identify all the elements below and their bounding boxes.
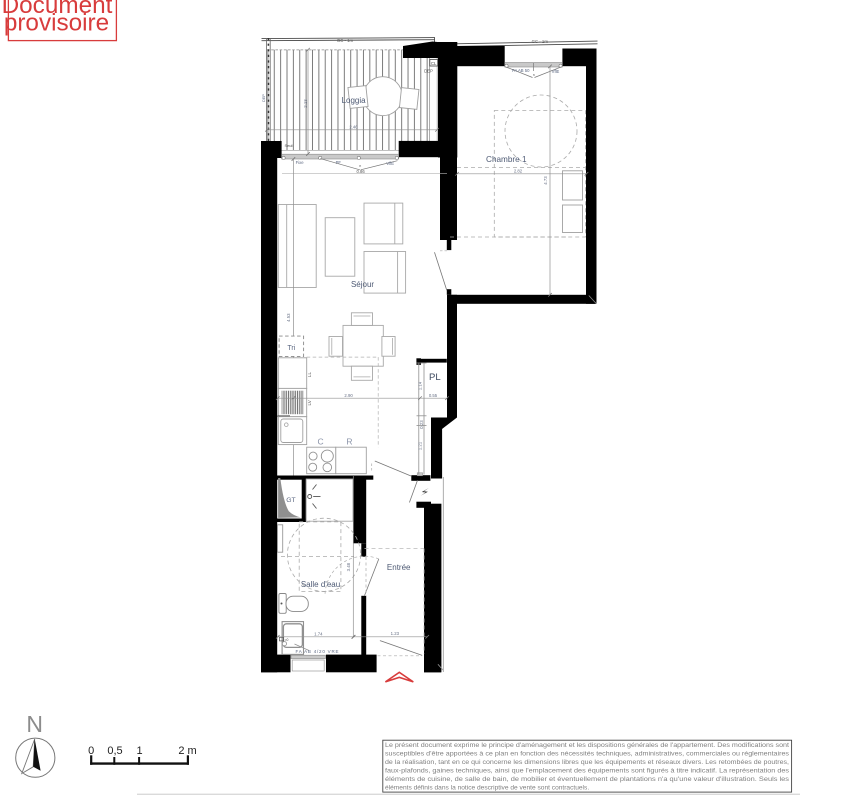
svg-text:PF: PF [336,160,342,165]
svg-text:2.46: 2.46 [349,125,358,130]
svg-text:VflE: VflE [552,69,560,74]
svg-text:DEP: DEP [424,68,433,73]
svg-text:3.48: 3.48 [346,562,351,571]
svg-text:n: n [359,164,361,168]
svg-text:0: 0 [88,745,94,757]
svg-text:éléments de cuisine, de salle: éléments de cuisine, de salle de bain, d… [385,776,790,783]
svg-text:éléments définis dans la notic: éléments définis dans la notice descript… [385,785,589,792]
svg-text:LL: LL [307,372,312,378]
svg-text:1.14: 1.14 [418,381,423,390]
svg-text:1.74: 1.74 [314,631,323,636]
svg-text:provisoire: provisoire [4,10,109,37]
svg-text:FA AB 50: FA AB 50 [512,68,530,73]
svg-text:susceptibles d'être apportées: susceptibles d'être apportées à ce plan … [385,751,790,758]
svg-text:=0: =0 [285,638,289,642]
svg-text:4.53: 4.53 [286,313,291,322]
svg-text:2.82: 2.82 [514,168,523,173]
svg-text:C: C [318,437,324,447]
svg-text:4.73: 4.73 [543,176,548,185]
svg-text:1: 1 [136,745,142,757]
svg-text:GC - 1m: GC - 1m [337,38,354,43]
svg-text:0.23: 0.23 [419,420,424,429]
svg-text:Entrée: Entrée [387,563,411,572]
svg-text:de la réalisation, tant en ce: de la réalisation, tant en ce qui concer… [385,759,789,766]
svg-text:DEP: DEP [262,94,266,102]
svg-text:0,5: 0,5 [107,745,122,757]
svg-text:n: n [533,73,535,77]
svg-text:Séjour: Séjour [351,280,374,289]
svg-text:2.13: 2.13 [303,99,308,108]
svg-text:GT: GT [286,497,295,504]
svg-text:faux-plafonds, gaines techniqu: faux-plafonds, gaines techniques, ainsi … [385,768,790,775]
svg-text:2.90: 2.90 [344,393,353,398]
svg-text:1.23: 1.23 [391,631,400,636]
svg-text:0.55: 0.55 [429,393,438,398]
svg-text:Chambre 1: Chambre 1 [486,155,527,164]
svg-text:Loggia: Loggia [342,96,367,105]
svg-text:Seuil: Seuil [285,143,294,148]
svg-text:1.21: 1.21 [418,441,423,450]
svg-text:FA AB 4/20 VRE: FA AB 4/20 VRE [296,649,339,654]
svg-text:Salle d'eau: Salle d'eau [301,580,340,589]
svg-text:N: N [26,711,43,737]
svg-text:LV: LV [307,399,312,405]
svg-text:GC - 1m: GC - 1m [532,39,549,44]
svg-text:R: R [346,437,352,447]
svg-text:2 m: 2 m [178,745,196,757]
svg-text:PL: PL [429,372,441,383]
svg-text:Le présent document exprime le: Le présent document exprime le principe … [385,742,789,749]
svg-text:Fixe: Fixe [296,160,305,165]
svg-text:Tri: Tri [287,345,295,352]
svg-text:VflE: VflE [386,161,394,166]
svg-text:CL: CL [431,61,437,66]
